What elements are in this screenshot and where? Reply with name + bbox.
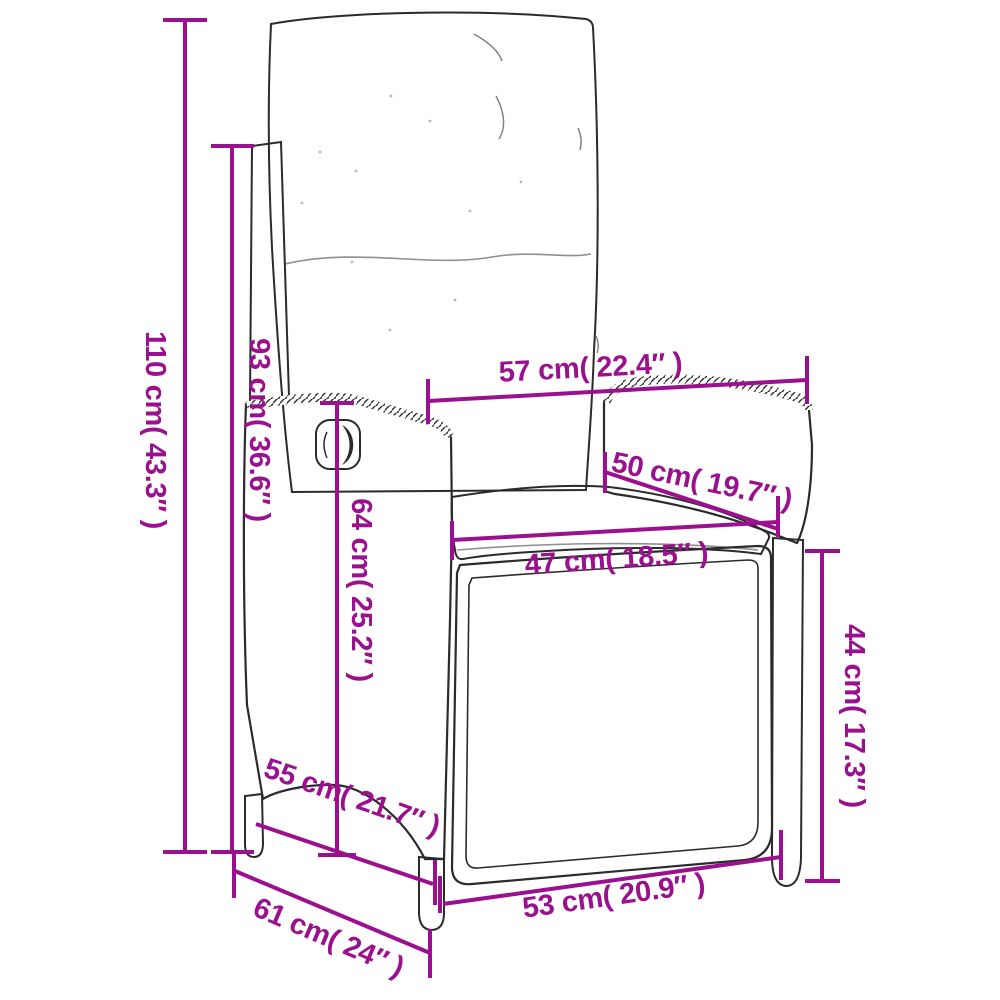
right-side-strip (772, 538, 803, 886)
chair-dimension-drawing: 110 cm( 43.3″ ) 93 cm( 36.6″ ) 57 cm( 22… (0, 0, 1000, 1000)
cushion-speckles (301, 95, 523, 332)
dimension-armrest-height-label: 64 cm( 25.2″ ) (345, 498, 377, 682)
dimension-overall-height: 110 cm( 43.3″ ) (139, 20, 207, 852)
dimension-backrest-height-label: 93 cm( 36.6″ ) (243, 338, 275, 522)
dimension-seat-width-label: 47 cm( 18.5″ ) (524, 537, 710, 582)
dimension-front-bottom-width: 53 cm( 20.9″ ) (440, 830, 781, 925)
dimension-side-seat-depth: 55 cm( 21.7″ ) (256, 752, 444, 905)
front-base-panel (452, 546, 772, 884)
dimension-front-bottom-width-label: 53 cm( 20.9″ ) (521, 867, 707, 924)
dimension-overall-depth-label: 61 cm( 24″ ) (249, 892, 409, 984)
product-dimension-diagram: 110 cm( 43.3″ ) 93 cm( 36.6″ ) 57 cm( 22… (0, 0, 1000, 1000)
dimension-seat-front-height: 44 cm( 17.3″ ) (805, 551, 870, 881)
dimension-side-seat-depth-label: 55 cm( 21.7″ ) (260, 752, 444, 842)
dimension-overall-height-label: 110 cm( 43.3″ ) (139, 331, 171, 529)
dimension-seat-front-height-label: 44 cm( 17.3″ ) (838, 624, 870, 808)
dimension-overall-depth: 61 cm( 24″ ) (234, 850, 430, 984)
